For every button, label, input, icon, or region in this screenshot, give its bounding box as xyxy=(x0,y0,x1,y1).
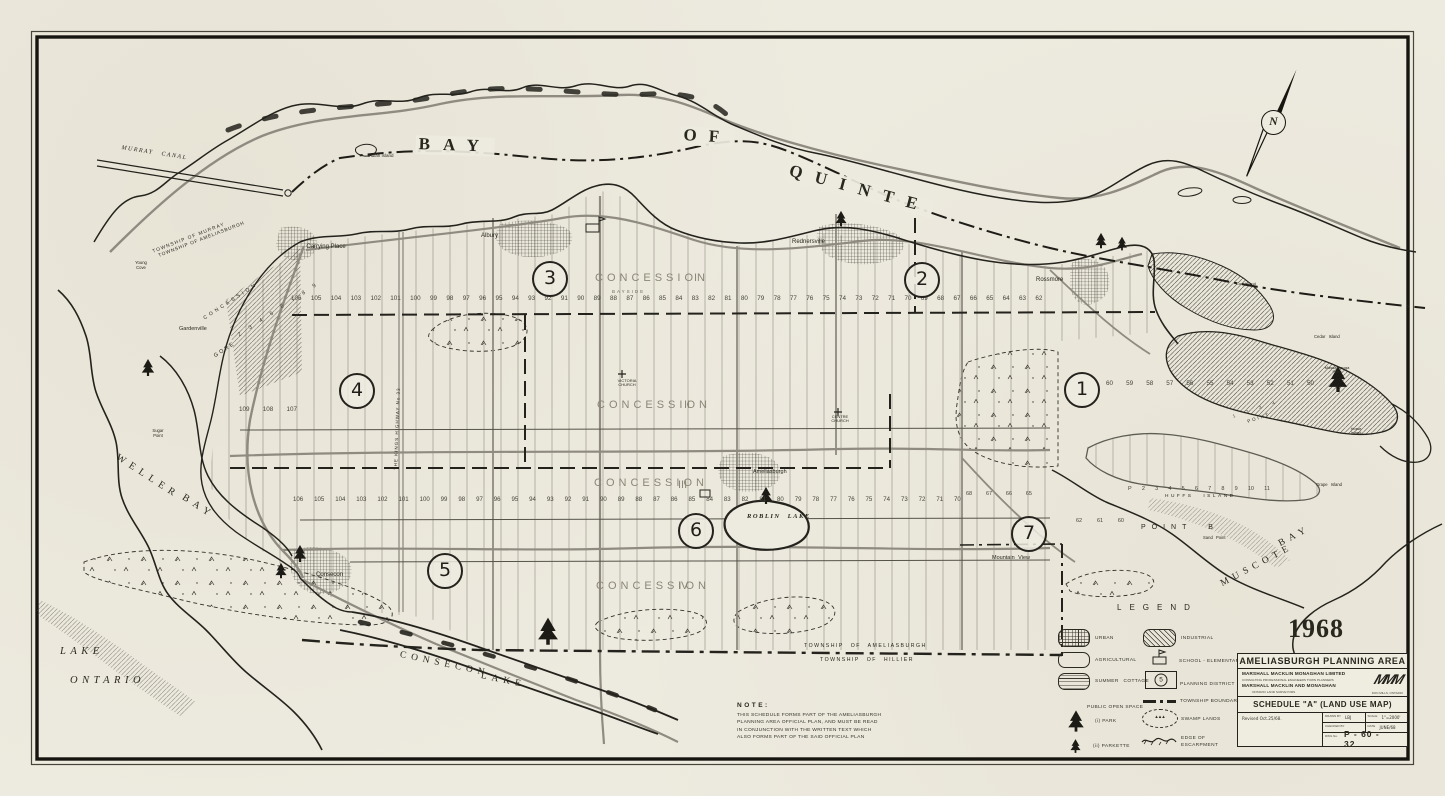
district-circle-7: 7 xyxy=(1011,516,1047,552)
industrial-swatch-icon xyxy=(1143,629,1176,647)
legend-school-label: SCHOOL - ELEMENTARY xyxy=(1179,659,1243,664)
map-sheet: BAY OF QUINTE LAKE ONTARIO WELLER BAY CO… xyxy=(0,0,1445,796)
lot-row-point-b: 626160 xyxy=(1076,518,1124,524)
concession-4-numeral: IV xyxy=(678,580,688,592)
victoria-church-label: VICTORIA CHURCH xyxy=(612,379,642,388)
note-line-4: ALSO FORMS PART OF THE SAID OFFICIAL PLA… xyxy=(737,734,881,741)
title-block: AMELIASBURGH PLANNING AREA MARSHALL MACK… xyxy=(1237,653,1408,747)
parkette-tree-icon xyxy=(1069,737,1082,755)
young-cove-label: Young Cove xyxy=(130,261,152,270)
ameliasburgh-label: Ameliasburgh xyxy=(753,469,787,475)
concession-2-label: CONCESSION xyxy=(597,399,711,411)
firm-name-1-sub: CONSULTING PROFESSIONAL ENGINEERS TOWN P… xyxy=(1242,678,1334,682)
albury-label: Albury xyxy=(481,233,498,240)
concession-3-numeral: III xyxy=(678,479,687,491)
mountain-view-label: Mountain View xyxy=(992,555,1030,561)
legend-planning-district-label: PLANNING DISTRICT xyxy=(1180,682,1235,687)
title-block-firm: MARSHALL MACKLIN MONAGHAN LIMITED CONSUL… xyxy=(1238,669,1407,697)
district-circle-2: 2 xyxy=(904,262,940,298)
carrying-place-label: Carrying Place xyxy=(306,244,346,251)
dwg-cell: DWG No. P - 60 - 32 xyxy=(1323,733,1407,747)
point-b-label: POINT B xyxy=(1141,524,1219,532)
township-of-ameliasburgh-bottom-label: TOWNSHIP OF AMELIASBURGH xyxy=(804,644,927,650)
legend-township-boundary-label: TOWNSHIP BOUNDARY xyxy=(1180,699,1241,704)
grape-island-label: Grape Island xyxy=(1316,483,1342,488)
note-line-1: THIS SCHEDULE FORMS PART OF THE AMELIASB… xyxy=(737,712,881,719)
compass-north-letter: N xyxy=(1261,110,1286,135)
lot-row-east: 6059585756555453525150 xyxy=(1106,380,1314,387)
lot-row-left-upper: 109108107 xyxy=(239,406,297,413)
escarpment-sample-icon xyxy=(1140,733,1178,748)
map-linework xyxy=(0,0,1445,796)
swamp-lands-sample-icon: ▴ ▴ ▴ xyxy=(1142,709,1178,728)
legend-park-label: (i) PARK xyxy=(1095,719,1117,724)
drawn-by-label: DRAWN BY xyxy=(1325,714,1341,718)
sand-point-label: Sand Point xyxy=(1203,536,1226,541)
centre-church-label: CENTRE CHURCH xyxy=(826,415,854,424)
lot-row-west-point: 68676665 xyxy=(966,491,1032,497)
map-year: 1968 xyxy=(1288,615,1344,644)
bay-of-quinte-label-2: OF xyxy=(680,126,735,147)
summer-cottage-swatch-icon xyxy=(1058,673,1090,690)
firm-name-2-sub: ONTARIO LAND SURVEYORS xyxy=(1252,690,1295,694)
huffs-island-label: HUFFS ISLAND xyxy=(1165,494,1236,499)
scale-value: 1"=2000' xyxy=(1382,715,1401,720)
mmm-logo-icon: MMM xyxy=(1372,671,1404,687)
planning-district-sample-icon: 5 xyxy=(1145,671,1177,689)
township-of-hillier-label: TOWNSHIP OF HILLIER xyxy=(820,658,914,664)
legend-public-open-space-label: PUBLIC OPEN SPACE xyxy=(1087,705,1143,710)
township-boundary-sample-icon xyxy=(1143,700,1176,703)
rednersville-label: Rednersville xyxy=(792,239,825,246)
drawn-by-cell: DRAWN BY LBJ xyxy=(1323,713,1365,722)
concession-4-label: CONCESSION xyxy=(596,580,710,592)
district-circle-1: 1 xyxy=(1064,372,1100,408)
legend-summer-cottage-label: SUMMER COTTAGE xyxy=(1095,679,1149,684)
concession-2-numeral: II xyxy=(684,399,690,411)
concession-3-label: CONCESSION xyxy=(594,477,708,489)
note-block: NOTE: THIS SCHEDULE FORMS PART OF THE AM… xyxy=(737,702,881,741)
school-icon xyxy=(1149,648,1173,666)
sugar-point-label: Sugar Point xyxy=(148,429,168,438)
scale-label: SCALE xyxy=(1368,714,1378,718)
firm-location: DON MILLS, ONTARIO xyxy=(1372,691,1403,695)
cedar-island-label: Cedar Island xyxy=(1314,335,1340,340)
note-heading: NOTE: xyxy=(737,702,881,709)
roblin-lake-label: ROBLIN LAKE xyxy=(747,513,811,520)
horse-island-label: Horse Island xyxy=(1346,427,1366,436)
note-line-3: IN CONJUNCTION WITH THE WRITTEN TEXT WHI… xyxy=(737,727,881,734)
park-tree-icon xyxy=(1066,706,1086,736)
legend-swamp-lands-label: SWAMP LANDS xyxy=(1181,717,1221,722)
district-circle-6: 6 xyxy=(678,513,714,549)
cow-island-label: Cow Island xyxy=(1236,282,1256,286)
schedule-title: SCHEDULE "A" (LAND USE MAP) xyxy=(1238,697,1407,713)
legend-parkette-label: (ii) PARKETTE xyxy=(1093,744,1130,749)
massassauga-point-label: Massassauga Point xyxy=(1320,366,1354,375)
consecon-label: Consecon xyxy=(316,572,343,579)
concession-1-numeral: I xyxy=(694,272,697,284)
revised-note: Revised Oct.25/68. xyxy=(1242,716,1282,721)
scale-cell: SCALE 1"=2000' xyxy=(1365,713,1408,722)
rossmore-label: Rossmore xyxy=(1036,277,1063,284)
lot-row-huffs: P234567891011 xyxy=(1128,486,1270,492)
checked-by-label: CHECKED BY xyxy=(1325,724,1345,728)
note-line-2: PLANNING AREA OFFICIAL PLAN, AND MUST BE… xyxy=(737,719,881,726)
district-circle-4: 4 xyxy=(339,373,375,409)
title-block-info-grid: Revised Oct.25/68. DRAWN BY LBJ SCALE 1"… xyxy=(1238,713,1407,747)
lot-row-concession1: 1061051041031021011009998979695949392919… xyxy=(291,295,1043,302)
firm-name-1: MARSHALL MACKLIN MONAGHAN LIMITED xyxy=(1242,671,1345,676)
legend-urban-label: URBAN xyxy=(1095,636,1114,641)
drawn-by-value: LBJ xyxy=(1345,715,1351,720)
indian-island-label: Indian Island xyxy=(368,154,394,159)
title-block-title: AMELIASBURGH PLANNING AREA xyxy=(1238,654,1407,669)
date-label: DATE xyxy=(1368,724,1376,728)
agricultural-swatch-icon xyxy=(1058,652,1090,668)
planning-district-sample-number: 5 xyxy=(1155,674,1168,687)
district-circle-3: 3 xyxy=(532,261,568,297)
bay-of-quinte-label-1: BAY xyxy=(415,135,495,156)
dwg-label: DWG No. xyxy=(1325,734,1338,738)
legend-title: LEGEND xyxy=(1117,604,1198,613)
lot-row-concession3: 1061051041031021011009998979695949392919… xyxy=(293,496,961,503)
firm-name-2: MARSHALL MACKLIN AND MONAGHAN xyxy=(1242,683,1336,688)
legend-escarpment-label: EDGE OF ESCARPMENT xyxy=(1181,736,1215,749)
concession-1-label: CONCESSION xyxy=(595,272,709,284)
legend-industrial-label: INDUSTRIAL xyxy=(1181,636,1214,641)
dwg-number: P - 60 - 32 xyxy=(1344,729,1386,749)
legend-agricultural-label: AGRICULTURAL xyxy=(1095,658,1137,663)
lake-ontario-label-2: ONTARIO xyxy=(70,675,145,687)
gardenville-label: Gardenville xyxy=(179,326,207,332)
lake-ontario-label-1: LAKE xyxy=(60,646,104,658)
revision-cell: Revised Oct.25/68. xyxy=(1238,713,1323,747)
district-circle-5: 5 xyxy=(427,553,463,589)
urban-swatch-icon xyxy=(1058,629,1090,647)
